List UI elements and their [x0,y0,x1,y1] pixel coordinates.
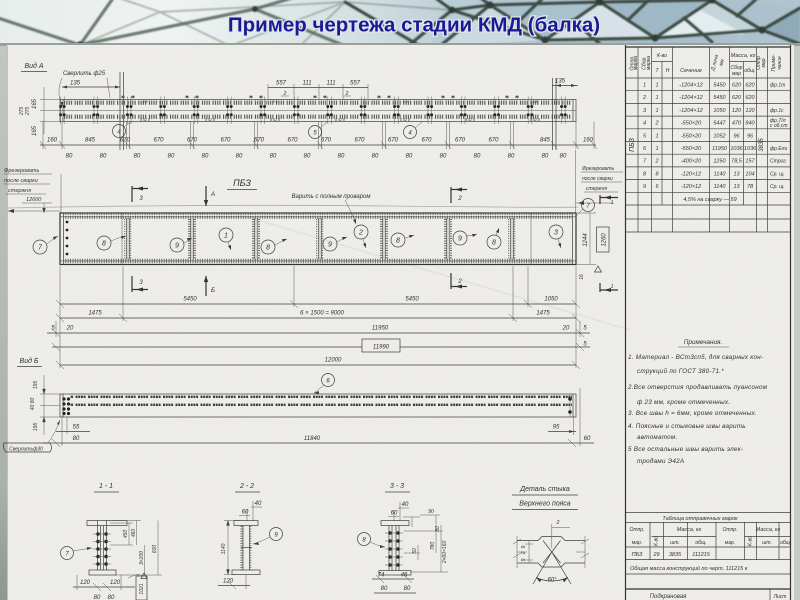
svg-text:Пример чертежа стадии КМД (бал: Пример чертежа стадии КМД (балка) [228,14,600,37]
